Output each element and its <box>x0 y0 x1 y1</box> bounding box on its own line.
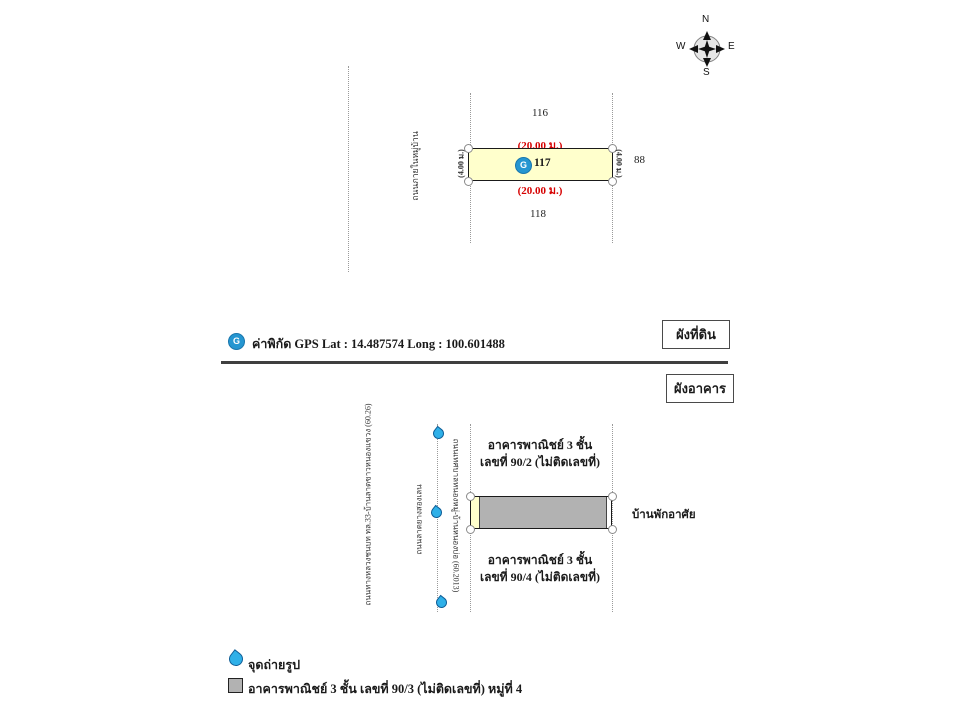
building-south-label-line2: เลขที่ 90/4 (ไม่ติดเลขที่) <box>430 568 650 587</box>
compass-letter-s: S <box>703 67 710 78</box>
legend-photo-point-label: จุดถ่ายรูป <box>248 655 300 675</box>
compass-letter-e: E <box>728 41 735 52</box>
building-corner-marker <box>466 525 475 534</box>
survey-document: N E S W ถนนภายในหมู่บ้าน 116 (20.00 ม.) … <box>0 0 960 720</box>
neighbor-parcel-east: 88 <box>634 154 645 166</box>
gps-point-marker: G <box>515 157 532 174</box>
gps-legend-marker: G <box>228 333 245 350</box>
photo-point-icon <box>429 505 444 520</box>
legend-photo-point-icon <box>226 649 246 669</box>
compass-letter-w: W <box>676 41 685 52</box>
building-right-strip <box>606 497 611 528</box>
building-90-3-shape <box>470 496 612 529</box>
parcel-height-dim-left: (4.00 ม.) <box>455 124 468 204</box>
neighbor-parcel-north: 116 <box>500 107 580 119</box>
building-north-label-line2: เลขที่ 90/2 (ไม่ติดเลขที่) <box>430 453 650 472</box>
building-corner-marker <box>608 492 617 501</box>
building-road-left-label: ถนนทางหลวงชนบท ทล.33-บ้านลาดขาวหนองแขวง … <box>362 395 375 615</box>
building-body <box>480 497 606 528</box>
land-road-dotted-line <box>348 66 349 272</box>
legend-building-swatch <box>228 678 243 693</box>
building-road-middle-label: ถนนลาดยางสองเลน <box>413 420 426 620</box>
compass-letter-n: N <box>702 14 709 25</box>
section-divider <box>221 361 728 364</box>
building-corner-marker <box>466 492 475 501</box>
parcel-number: 117 <box>534 157 551 169</box>
building-land-strip <box>471 497 480 528</box>
parcel-width-dim-bottom: (20.00 ม.) <box>480 181 600 199</box>
building-corner-marker <box>608 525 617 534</box>
land-road-label: ถนนภายในหมู่บ้าน <box>408 66 422 266</box>
gps-caption: ค่าพิกัด GPS Lat : 14.487574 Long : 100.… <box>252 334 505 354</box>
section-label-land-plan: ผังที่ดิน <box>662 320 730 349</box>
neighbor-parcel-south: 118 <box>498 208 578 220</box>
legend-building-label: อาคารพาณิชย์ 3 ชั้น เลขที่ 90/3 (ไม่ติดเ… <box>248 679 522 699</box>
east-neighbor-label: บ้านพักอาศัย <box>632 506 696 524</box>
section-label-building-plan: ผังอาคาร <box>666 374 734 403</box>
parcel-height-dim-right: (4.00 ม.) <box>613 124 626 204</box>
